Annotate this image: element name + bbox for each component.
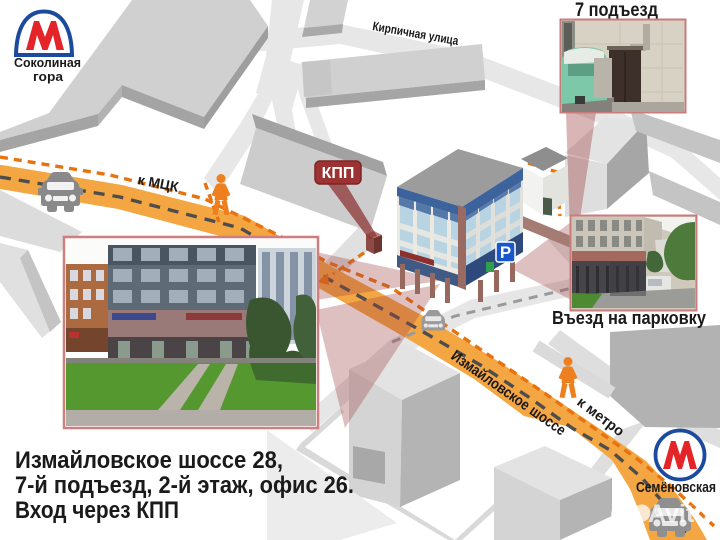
svg-text:Avito: Avito	[648, 500, 710, 528]
svg-text:Въезд на парковку: Въезд на парковку	[552, 308, 706, 328]
svg-text:гора: гора	[33, 69, 64, 84]
svg-text:7 подъезд: 7 подъезд	[575, 0, 658, 21]
svg-text:7-й подъезд, 2-й этаж, офис 26: 7-й подъезд, 2-й этаж, офис 26.	[15, 472, 354, 499]
svg-text:P: P	[500, 243, 511, 262]
svg-text:Измайловское шоссе 28,: Измайловское шоссе 28,	[15, 447, 283, 474]
svg-text:КПП: КПП	[322, 165, 355, 182]
svg-text:Семёновская: Семёновская	[636, 479, 716, 496]
svg-text:Вход через КПП: Вход через КПП	[15, 497, 179, 524]
svg-text:Соколиная: Соколиная	[14, 55, 81, 70]
